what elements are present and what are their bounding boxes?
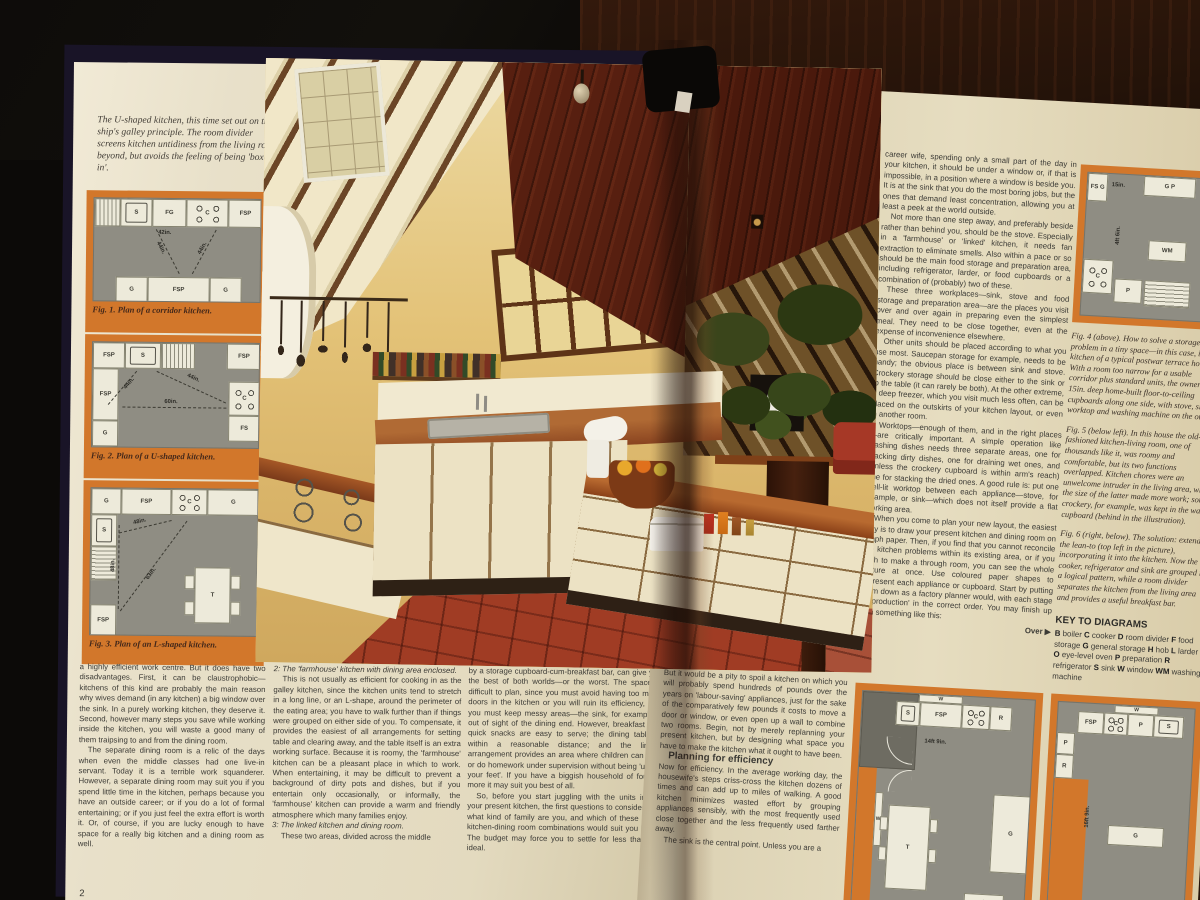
drainer-hatch — [94, 198, 120, 226]
unit-label: G — [129, 287, 134, 293]
plan-unit-g: G — [963, 893, 1004, 900]
unit-label: FSP — [935, 712, 947, 719]
dimension-line — [192, 230, 217, 274]
paragraph: by a storage cupboard-cum-breakfast bar,… — [467, 666, 661, 793]
unit-label: WM — [1162, 248, 1173, 255]
plan-unit-fsp: FSP — [228, 200, 261, 228]
unit-label: C — [974, 714, 979, 720]
dimension-label: 15in. — [1112, 182, 1126, 189]
unit-label: S — [1166, 724, 1170, 730]
plan-chair — [879, 816, 888, 830]
photo-red-sofa — [833, 422, 882, 475]
plan-table: T — [884, 805, 931, 891]
dimension-label: 48in. — [110, 559, 116, 572]
plan-unit-p: P — [1127, 714, 1154, 737]
dimension-label: 16ft 9in. — [1084, 806, 1091, 828]
dimension-label: 44in. — [186, 373, 201, 384]
unit-label: W — [1134, 707, 1139, 713]
paragraph: When you come to plan your new layout, t… — [859, 513, 1057, 628]
fig5-caption: Fig. 5 (below left). In this house the o… — [1061, 425, 1200, 529]
figure-5-plan: W S FSP C R 14ft 9in. W T G G — [842, 683, 1043, 900]
paragraph: The separate dining room is a relic of t… — [78, 745, 265, 851]
plan-unit-cooker: C — [961, 705, 990, 731]
plan-unit-fsp: FSP — [1077, 711, 1104, 734]
plan-unit-fsp: FSP — [919, 702, 962, 728]
photo-intro-caption: The U-shaped kitchen, this time set out … — [97, 114, 282, 176]
unit-label: P — [1126, 288, 1130, 294]
unit-label: C — [187, 499, 191, 505]
unit-label: C — [205, 210, 209, 216]
key-entry: H hob — [1148, 645, 1172, 655]
unit-label: FSP — [100, 391, 112, 397]
unit-label: FG — [165, 210, 173, 216]
unit-label: FSP — [240, 211, 252, 217]
plan-chair — [928, 849, 937, 863]
plan-chair — [230, 602, 240, 616]
key-entry: S sink — [1093, 663, 1117, 673]
photo-downlight — [751, 214, 763, 228]
plan-unit-fsp: FSP — [147, 277, 209, 303]
unit-label: T — [905, 845, 909, 851]
fig3-plan: G FSP C G S FSP T 48in. 63in. 48in. — [89, 487, 259, 637]
magazine-spread-photo: The U-shaped kitchen, this time set out … — [0, 0, 1200, 900]
plan-unit-cooker: C — [171, 489, 207, 515]
plan-unit-g: G — [1107, 825, 1164, 848]
paragraph: Not more than one step away, and prefera… — [878, 212, 1074, 295]
unit-label: G — [223, 288, 228, 294]
plan-unit-fsp: FSP — [93, 342, 125, 368]
unit-label: R — [999, 716, 1004, 722]
page-gutter-shadow — [650, 40, 714, 900]
drainer-hatch — [1143, 280, 1190, 309]
key-entry: W window — [1117, 664, 1156, 675]
plan-chair — [184, 575, 194, 589]
plan-outside-area — [1046, 778, 1088, 900]
dimension-label: 44in. — [123, 377, 136, 391]
fig4-caption: Fig. 4 (above). How to solve a storage p… — [1067, 331, 1200, 424]
plan-unit-sink: S — [895, 701, 920, 726]
door-arc — [888, 769, 912, 793]
plan-unit-cooker: C — [228, 382, 260, 416]
plan-unit-cooker: C — [186, 199, 228, 227]
plan-unit-p: P — [1056, 732, 1075, 755]
unit-label: FSP — [173, 287, 185, 293]
dimension-label: 63in. — [145, 567, 158, 581]
unit-label: FSP — [103, 352, 115, 358]
fig4-plan: FS G 15in. G P WM C P 4ft 6in. — [1079, 172, 1200, 323]
unit-label: G — [231, 500, 236, 506]
key-entry: L larder — [1171, 646, 1199, 657]
figure-3: G FSP C G S FSP T 48in. 63in. 48in. Fig.… — [82, 480, 266, 666]
unit-label: FSP — [97, 617, 109, 623]
photo-tap — [484, 396, 487, 412]
fig6-caption: Fig. 6 (right, below). The solution: ext… — [1056, 529, 1200, 612]
dimension-label: 60in. — [164, 399, 177, 405]
plan-unit-g: G — [92, 420, 118, 446]
plan-table: T — [194, 567, 231, 623]
unit-label: FS G — [1090, 184, 1104, 191]
plan-unit-fsp: FSP — [121, 489, 171, 516]
unit-label: S — [906, 710, 910, 716]
fig3-caption: Fig. 3. Plan of an L-shaped kitchen. — [89, 639, 257, 650]
paragraph: Worktops—enough of them, and in the righ… — [865, 420, 1062, 524]
plan-chair — [929, 819, 938, 833]
plan-unit-gp: G P — [1143, 176, 1196, 199]
left-column-2: 2: The 'farmhouse' kitchen with dining a… — [271, 664, 461, 898]
unit-label: S — [102, 527, 106, 533]
unit-label: S — [141, 353, 145, 359]
key-entry: B boiler — [1054, 629, 1084, 640]
plan-unit-sink: S — [120, 198, 152, 226]
plan-unit-g: G — [989, 794, 1031, 874]
dimension-line — [122, 407, 226, 409]
plan-unit-sink: S — [125, 343, 161, 369]
paragraph: Other units should be placed according t… — [870, 336, 1066, 430]
plan-unit-g: G — [209, 277, 241, 303]
unit-label: FSP — [141, 499, 153, 505]
unit-label: FSP — [238, 354, 250, 360]
dimension-line — [120, 521, 188, 612]
plan-unit-washing-machine: WM — [1148, 240, 1187, 262]
plan-unit-p: P — [1113, 278, 1142, 304]
unit-label: FS — [240, 426, 248, 432]
unit-label: S — [134, 210, 138, 216]
paragraph: a highly efficient work centre. But it d… — [79, 662, 266, 747]
key-list: B boiler C cooker D room divider F food … — [1052, 629, 1200, 690]
unit-label: P — [1063, 740, 1067, 746]
fig5-plan: W S FSP C R 14ft 9in. W T G G — [850, 690, 1036, 900]
fig6-plan: W FSP C P S P R 16ft 9in. G — [1045, 701, 1195, 900]
unit-label: C — [1113, 721, 1118, 727]
plan-unit-fs: FS — [228, 416, 260, 442]
plan-unit-fg: FG — [152, 199, 186, 227]
unit-label: G — [1008, 831, 1013, 837]
paragraph: career wife, spending only a small part … — [882, 149, 1077, 222]
plan-unit-fsp: FSP — [90, 604, 116, 636]
paragraph: These two areas, divided across the midd… — [272, 831, 460, 843]
unit-label: G — [104, 498, 109, 504]
page-number: 2 — [79, 888, 84, 899]
figure-6-plan: W FSP C P S P R 16ft 9in. G — [1038, 694, 1200, 900]
paragraph: So, before you start juggling with the u… — [467, 791, 661, 855]
plan-unit-g: G — [91, 488, 121, 514]
dimension-label: 14ft 9in. — [924, 739, 946, 746]
plan-unit-sink: S — [1153, 715, 1184, 739]
figure-1: S FG C FSP G FSP G 42in. 44in. 44in. Fig… — [85, 190, 268, 334]
key-entry: C cooker — [1084, 631, 1118, 642]
photo-cookbook-shelf — [372, 352, 500, 382]
key-entry: P preparation — [1115, 653, 1165, 665]
plan-chair — [878, 846, 887, 860]
fig1-caption: Fig. 1. Plan of a corridor kitchen. — [92, 305, 260, 316]
dimension-label: 48in. — [133, 517, 147, 526]
photo-sash-window — [294, 62, 390, 183]
fig2-caption: Fig. 2. Plan of a U-shaped kitchen. — [91, 451, 259, 462]
right-column-1: career wife, spending only a small part … — [857, 149, 1078, 675]
figure-4: FS G 15in. G P WM C P 4ft 6in. — [1072, 164, 1200, 330]
plan-unit-sink: S — [91, 514, 117, 546]
kitchen-photograph — [255, 58, 881, 673]
plan-chair — [184, 601, 194, 615]
left-column-1: a highly efficient work centre. But it d… — [77, 662, 265, 890]
binder-clip-tab — [675, 91, 693, 113]
unit-label: C — [242, 396, 246, 402]
plan-unit-g: G — [115, 276, 147, 302]
right-column-2: FS G 15in. G P WM C P 4ft 6in. Fig. 4 (a… — [1052, 164, 1200, 690]
unit-label: T — [211, 592, 215, 598]
unit-label: P — [1138, 722, 1142, 728]
drainer-hatch — [161, 343, 195, 369]
unit-label: G — [1133, 833, 1138, 839]
unit-label: G — [103, 430, 108, 436]
paragraph: This is not usually as efficient for coo… — [272, 675, 462, 823]
unit-label: W — [938, 696, 943, 702]
unit-label: FSP — [1085, 719, 1097, 726]
plan-unit-cooker: C — [1082, 259, 1114, 295]
fig1-plan: S FG C FSP G FSP G 42in. 44in. 44in. — [92, 197, 261, 303]
left-column-3: by a storage cupboard-cum-breakfast bar,… — [466, 666, 661, 900]
plan-unit-fsg: FS G — [1087, 173, 1109, 202]
figure-2: FSP S FSP FSP G C FS 60in. 44in. 44in. F… — [84, 334, 267, 480]
fig2-plan: FSP S FSP FSP G C FS 60in. 44in. 44in. — [91, 341, 260, 449]
plan-chair — [230, 576, 240, 590]
plan-unit-refrigerator: R — [989, 706, 1012, 731]
unit-label: C — [1095, 273, 1100, 279]
dimension-line — [118, 525, 120, 609]
plan-unit-g: G — [207, 489, 258, 516]
unit-label: R — [1062, 763, 1067, 769]
unit-label: G P — [1164, 184, 1175, 191]
dimension-label: 4ft 6in. — [1115, 226, 1122, 245]
plan-unit-refrigerator: R — [1055, 754, 1074, 779]
plan-unit-cooker: C — [1103, 713, 1128, 736]
plan-unit-fsp: FSP — [227, 344, 260, 370]
